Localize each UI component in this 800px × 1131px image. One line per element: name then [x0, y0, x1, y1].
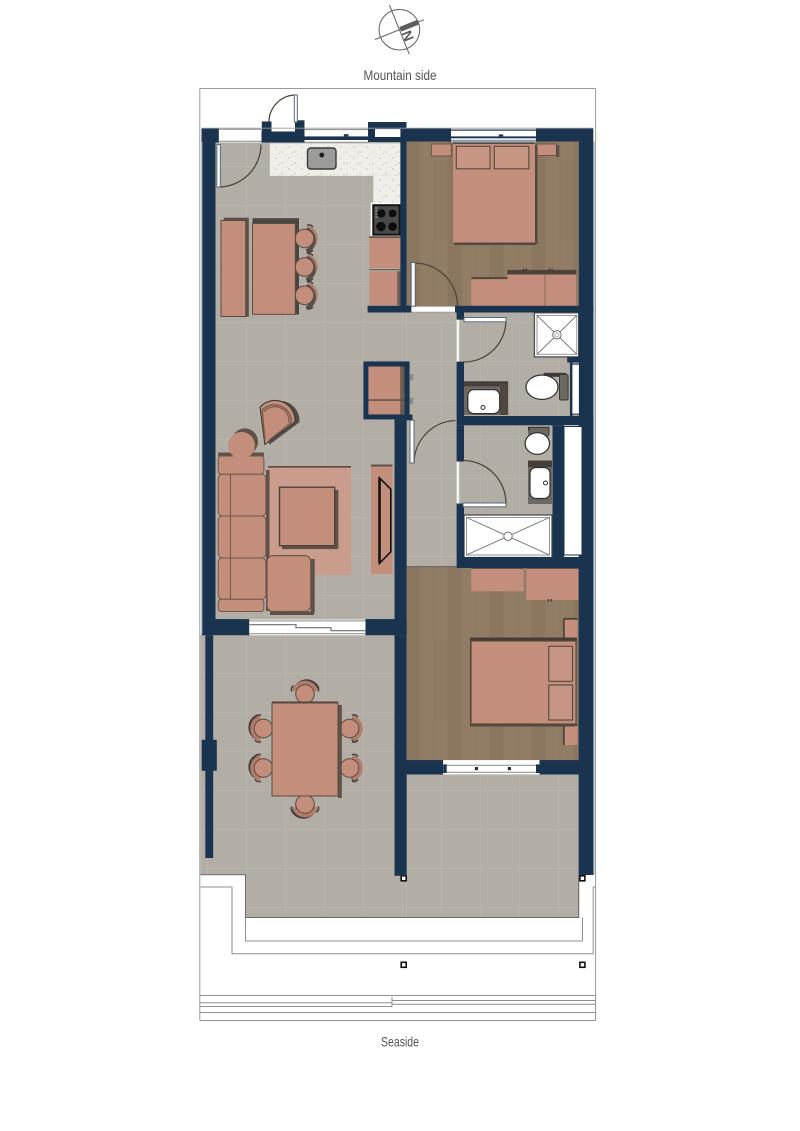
svg-text:Seaside: Seaside — [381, 1034, 419, 1050]
svg-text:Mountain side: Mountain side — [364, 67, 437, 83]
